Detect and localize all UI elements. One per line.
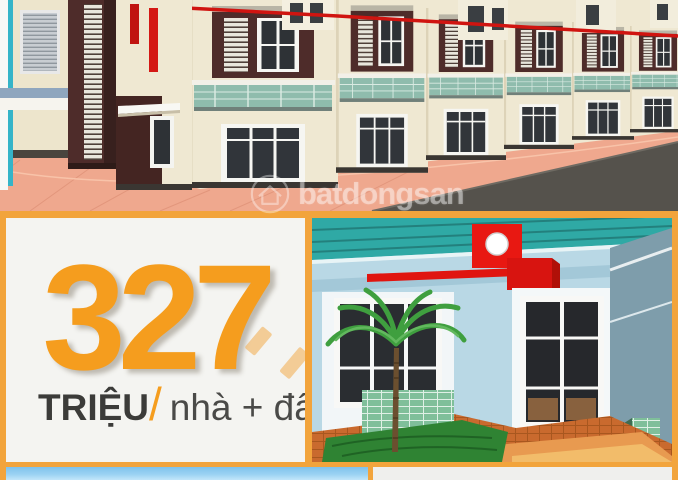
townhouse-row-render [0,0,678,211]
orange-band-middle [0,211,678,218]
price-caption: TRIỆU/nhà + đất [38,380,325,432]
price-descriptor: nhà + đất [170,387,325,428]
price-amount: 327 [6,242,305,392]
orange-divider-bottom-strip [368,467,373,480]
orange-band-lower [0,462,678,467]
price-unit: TRIỆU [38,387,149,428]
single-house-render [312,218,672,462]
price-slash: / [149,378,162,430]
real-estate-ad: 327 TRIỆU/nhà + đất [0,0,678,480]
blank-strip [373,467,672,480]
orange-divider-vertical [305,218,312,462]
orange-border-right [672,218,678,480]
orange-border-left [0,218,6,480]
sky-photo-strip [6,467,368,480]
right-door-unit [512,288,612,438]
